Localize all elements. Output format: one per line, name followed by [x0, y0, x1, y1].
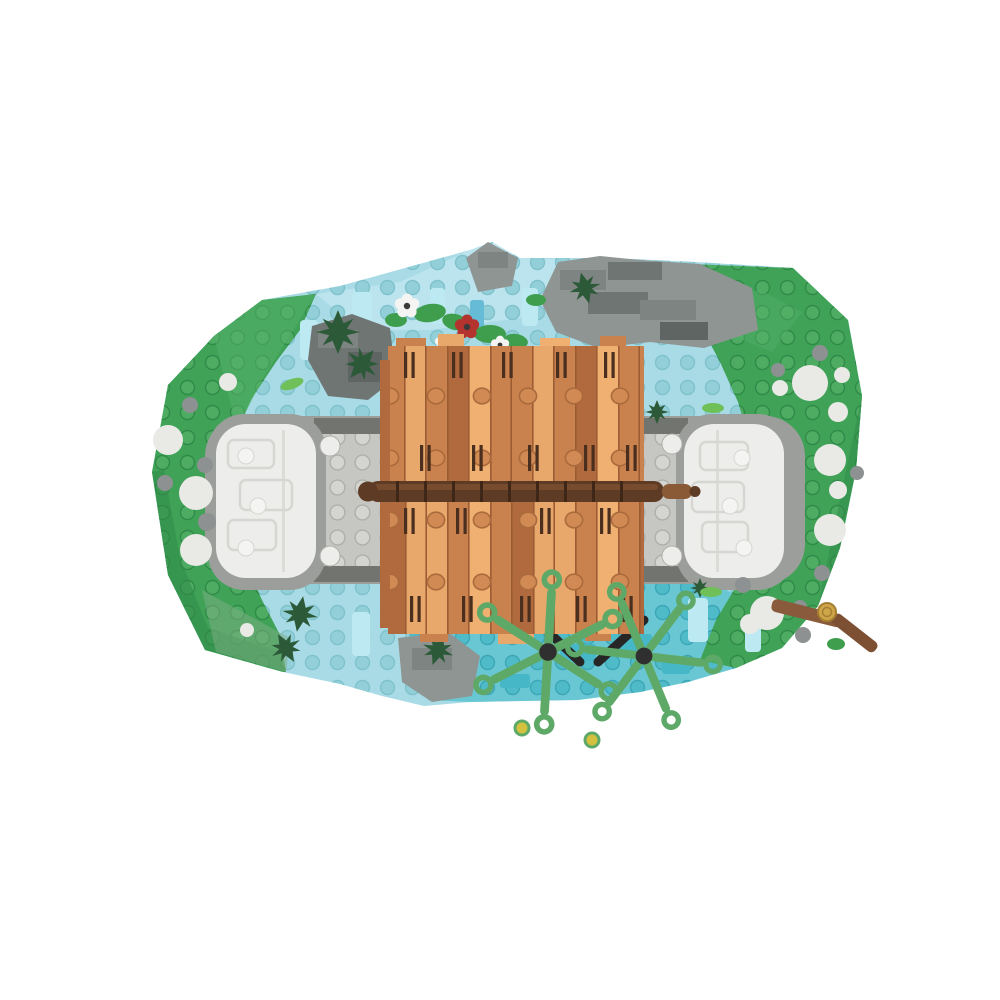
abutment-stud [238, 540, 254, 556]
abutment-stud [734, 450, 750, 466]
corner-cylinder [662, 546, 682, 566]
rock-facet [660, 322, 708, 340]
ridge-beam [358, 481, 701, 502]
corner-cylinder [320, 546, 340, 566]
abutment-seam [716, 430, 719, 572]
corner-cylinder [662, 434, 682, 454]
ridge-knob [690, 486, 701, 497]
rock-facet [478, 252, 508, 268]
abutment-seam [282, 430, 285, 572]
corner-cylinder [320, 436, 340, 456]
abutment-left [208, 414, 326, 590]
lego-diorama-top-view [0, 0, 1000, 1000]
abutment-stud [238, 448, 254, 464]
abutment-stud [722, 498, 738, 514]
rock-facet [588, 292, 648, 314]
lime-leaf [827, 638, 845, 650]
rock-facet [640, 300, 696, 320]
gold-coin [818, 603, 836, 621]
ridge-end-cap [358, 482, 378, 502]
trans-tile [352, 612, 370, 656]
plant-tip-yellow [515, 721, 529, 735]
ridge-extension [662, 484, 692, 499]
abutment-stud [736, 540, 752, 556]
plant-tip-yellow [585, 733, 599, 747]
abutment-stud [250, 498, 266, 514]
rock-facet [608, 262, 662, 280]
product-photo [0, 0, 1000, 1000]
ridge-highlight [374, 484, 658, 490]
trans-tile [522, 288, 538, 326]
abutment-right [676, 414, 794, 590]
abutment-white [216, 424, 316, 578]
